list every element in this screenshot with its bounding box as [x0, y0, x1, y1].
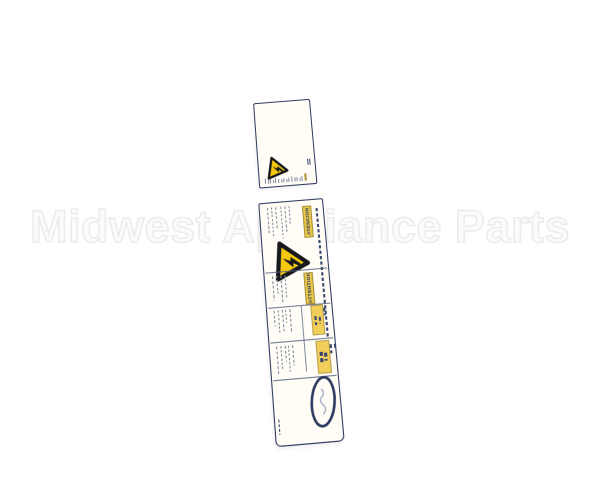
brand-oval-stamp	[307, 374, 339, 430]
warning-text-block	[272, 272, 330, 303]
caution-banner-fr-text: ATTENTION	[305, 273, 313, 304]
part-number-text	[278, 420, 281, 436]
caution-banner-es-text: ATENCION	[304, 208, 311, 236]
micro-text-marks	[307, 159, 311, 165]
yellow-chip	[305, 173, 308, 180]
label-top-panel	[253, 99, 317, 189]
label-decal: ATENCION ATTENTION	[251, 98, 345, 447]
product-photo: Midwest Appliance Parts ATENCION	[0, 0, 600, 480]
micro-text-line	[265, 176, 303, 184]
rating-unit-marks	[330, 344, 337, 354]
